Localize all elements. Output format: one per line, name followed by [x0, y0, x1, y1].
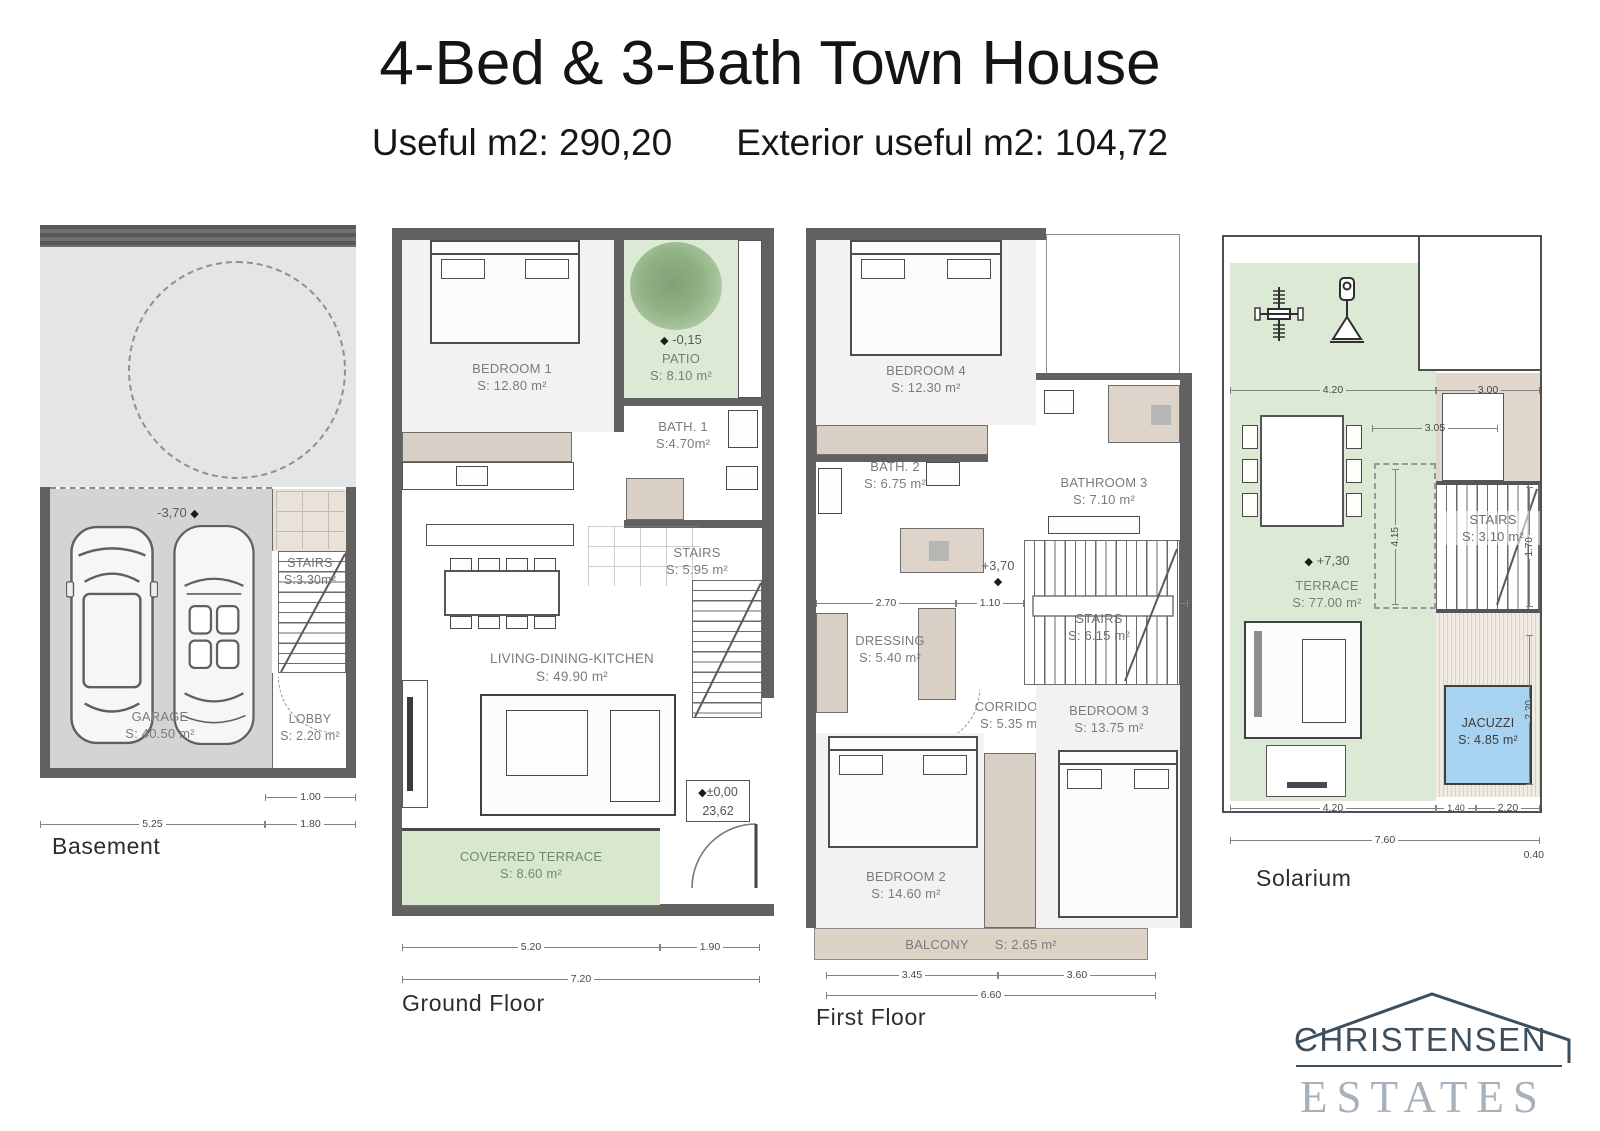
- dim-solarium-4-15: 4.15: [1388, 469, 1402, 605]
- dim-solarium-4-20-top: 4.20: [1230, 383, 1436, 397]
- logo-word: ESTATES: [1300, 1071, 1547, 1123]
- room-label-garage: GARAGE S: 40.50 m²: [95, 708, 225, 742]
- garage-door-line: [50, 487, 272, 489]
- dim-solarium-3-05: 3.05: [1372, 421, 1498, 435]
- solarium-notch: [1418, 237, 1540, 371]
- dim-solarium-4-20-bottom: 4.20: [1230, 801, 1436, 815]
- subtitle-useful: Useful m2: 290,20: [372, 122, 672, 164]
- dining-table: [444, 570, 560, 616]
- entrance-door-arc: [690, 822, 758, 890]
- ground-wall-bed1-patio: [614, 240, 624, 432]
- jacuzzi: JACUZZI S: 4.85 m²: [1444, 685, 1532, 785]
- room-label-dressing: DRESSING S: 5.40 m²: [832, 632, 948, 666]
- room-label-bedroom4: BEDROOM 4 S: 12.30 m²: [856, 362, 996, 396]
- bath1-shower: [626, 478, 684, 520]
- caption-basement: Basement: [52, 833, 160, 860]
- basement-level-marker: -3,70 ◆: [118, 505, 238, 520]
- room-label-living: LIVING-DINING-KITCHEN S: 49.90 m²: [467, 650, 677, 686]
- bathroom3-toilet: [1044, 390, 1074, 414]
- level-diamond-icon: ◆: [190, 508, 198, 520]
- bathroom3-double-sink: [1048, 516, 1140, 534]
- bedroom4-wardrobe: [816, 425, 988, 455]
- first-wall-right: [1180, 373, 1192, 928]
- pergola-dashed-outline: [1374, 463, 1436, 609]
- caption-solarium: Solarium: [1256, 865, 1352, 892]
- bedroom1-bed: [430, 240, 580, 344]
- solarium-dining-table: [1260, 415, 1344, 527]
- dim-solarium-3-00: 3.00: [1436, 383, 1540, 397]
- ground-wall-patio-bath: [624, 398, 762, 406]
- level-diamond-icon: ◆: [994, 576, 1002, 588]
- level-diamond-icon: ◆: [660, 335, 668, 347]
- basement-ceiling-grid: [276, 491, 344, 549]
- first-wall-left: [806, 228, 816, 928]
- dim-solarium-1-40: 1.40: [1436, 801, 1476, 815]
- ground-stairs-treads: [692, 580, 762, 718]
- dim-first-3-60: 3.60: [998, 968, 1156, 982]
- plan-basement: -3,70 ◆: [40, 225, 362, 875]
- room-label-lobby: LOBBY S: 2.20 m²: [264, 711, 356, 744]
- plan-ground-floor: BEDROOM 1 S: 12.80 m² ◆ -0,15 PATIO S: 8…: [392, 228, 778, 1028]
- room-label-bath1: BATH. 1 S:4.70m²: [630, 418, 736, 452]
- dim-basement-1-80: 1.80: [265, 817, 356, 831]
- bedroom4-bed: [850, 240, 1002, 356]
- dim-ground-5-20: 5.20: [402, 940, 660, 954]
- bedroom1-wardrobe: [402, 432, 572, 462]
- room-label-balcony: BALCONY S: 2.65 m²: [814, 936, 1148, 953]
- tree-icon: [630, 242, 722, 330]
- dim-ground-7-20: 7.20: [402, 972, 760, 986]
- page-title: 4-Bed & 3-Bath Town House: [0, 28, 1540, 99]
- room-label-first-stairs: STAIRS S: 6.15 m²: [1044, 610, 1154, 644]
- bath2-sink: [818, 468, 842, 514]
- caption-first-floor: First Floor: [816, 1004, 926, 1031]
- ground-wall-left: [392, 228, 402, 916]
- solarium-level-marker: ◆ +7,30: [1272, 553, 1382, 568]
- bedroom3-bed: [1058, 750, 1178, 918]
- dim-solarium-0-40: 0.40: [1494, 849, 1544, 861]
- floorplan-sheet: 4-Bed & 3-Bath Town House Useful m2: 290…: [0, 0, 1600, 1131]
- solarium-landing: [1442, 393, 1504, 481]
- room-label-basement-stairs: STAIRS S:3.30m²: [264, 555, 356, 588]
- bath2-toilet: [926, 462, 960, 486]
- dim-first-3-45: 3.45: [826, 968, 998, 982]
- logo-divider: [1296, 1065, 1562, 1067]
- level-diamond-icon: ◆: [1305, 556, 1313, 568]
- logo-name: CHRISTENSEN: [1294, 1021, 1547, 1059]
- dining-table-group: [440, 558, 564, 630]
- subtitle-exterior: Exterior useful m2: 104,72: [736, 122, 1168, 164]
- room-label-bedroom1: BEDROOM 1 S: 12.80 m²: [442, 360, 582, 394]
- ground-wall-right: [762, 228, 774, 698]
- room-label-bedroom3: BEDROOM 3 S: 13.75 m²: [1042, 702, 1176, 736]
- kitchen-sink: [456, 466, 488, 486]
- plan-first-floor: BEDROOM 4 S: 12.30 m² BATHROOM 3 S: 7.10…: [806, 228, 1194, 1040]
- first-wall-top: [806, 228, 1046, 240]
- bedroom2-bed: [828, 736, 978, 848]
- gym-machine-icon: [1327, 275, 1367, 347]
- first-void-outline: [1046, 234, 1180, 380]
- dim-solarium-2-20-bottom: 2.20: [1476, 801, 1540, 815]
- page-subtitle: Useful m2: 290,20 Exterior useful m2: 10…: [0, 122, 1540, 164]
- solarium-side-table: [1266, 745, 1346, 797]
- logo-christensen-estates: CHRISTENSEN ESTATES: [1288, 985, 1578, 1125]
- dim-first-1-10: 1.10: [956, 596, 1024, 610]
- basement-ramp-door-band: [40, 225, 356, 247]
- level-diamond-icon: ◆: [698, 787, 706, 799]
- sofa: [480, 694, 676, 816]
- room-label-patio: PATIO S: 8.10 m²: [628, 350, 734, 384]
- dim-ground-1-90: 1.90: [660, 940, 760, 954]
- first-wall-bathroom3-top: [1036, 373, 1180, 380]
- dim-solarium-7-60: 7.60: [1230, 833, 1540, 847]
- bath1-toilet: [726, 466, 758, 490]
- kitchen-island: [426, 524, 574, 546]
- first-party-wall: [984, 753, 1036, 928]
- dim-basement-5-25: 5.25: [40, 817, 265, 831]
- dim-first-6-60: 6.60: [826, 988, 1156, 1002]
- ground-wall-top: [392, 228, 774, 240]
- bathroom3-shower: [1108, 385, 1180, 443]
- kitchen-counter: [402, 462, 574, 490]
- turning-circle: [128, 261, 346, 479]
- patio-storage: [738, 240, 762, 398]
- room-label-bathroom3: BATHROOM 3 S: 7.10 m²: [1036, 474, 1172, 508]
- plan-solarium: ◆ +7,30 TERRACE S: 77.00 m² 4.15 STAIRS …: [1222, 235, 1556, 905]
- dim-solarium-1-70: 1.70: [1522, 487, 1536, 607]
- ground-level-box: ◆±0,00 23,62: [686, 780, 750, 822]
- tv-unit: [402, 680, 428, 808]
- dim-solarium-2-20-right: 2.20: [1522, 635, 1536, 785]
- patio-level-marker: ◆ -0,15: [630, 332, 732, 347]
- room-label-bedroom2: BEDROOM 2 S: 14.60 m²: [836, 868, 976, 902]
- gym-multistation-icon: [1254, 283, 1304, 345]
- room-label-jacuzzi: JACUZZI S: 4.85 m²: [1446, 715, 1530, 748]
- room-label-covered-terrace: COVERRED TERRACE S: 8.60 m²: [422, 848, 640, 882]
- room-label-ground-stairs: STAIRS S: 5.95 m²: [636, 544, 758, 578]
- basement-wall-bottom: [40, 768, 356, 778]
- caption-ground-floor: Ground Floor: [402, 990, 545, 1017]
- solarium-sofa: [1244, 621, 1362, 739]
- basement-wall-left: [40, 487, 50, 778]
- dim-basement-1-00: 1.00: [265, 790, 356, 804]
- bath1-sink: [728, 410, 758, 448]
- solarium-dining-group: [1242, 413, 1362, 529]
